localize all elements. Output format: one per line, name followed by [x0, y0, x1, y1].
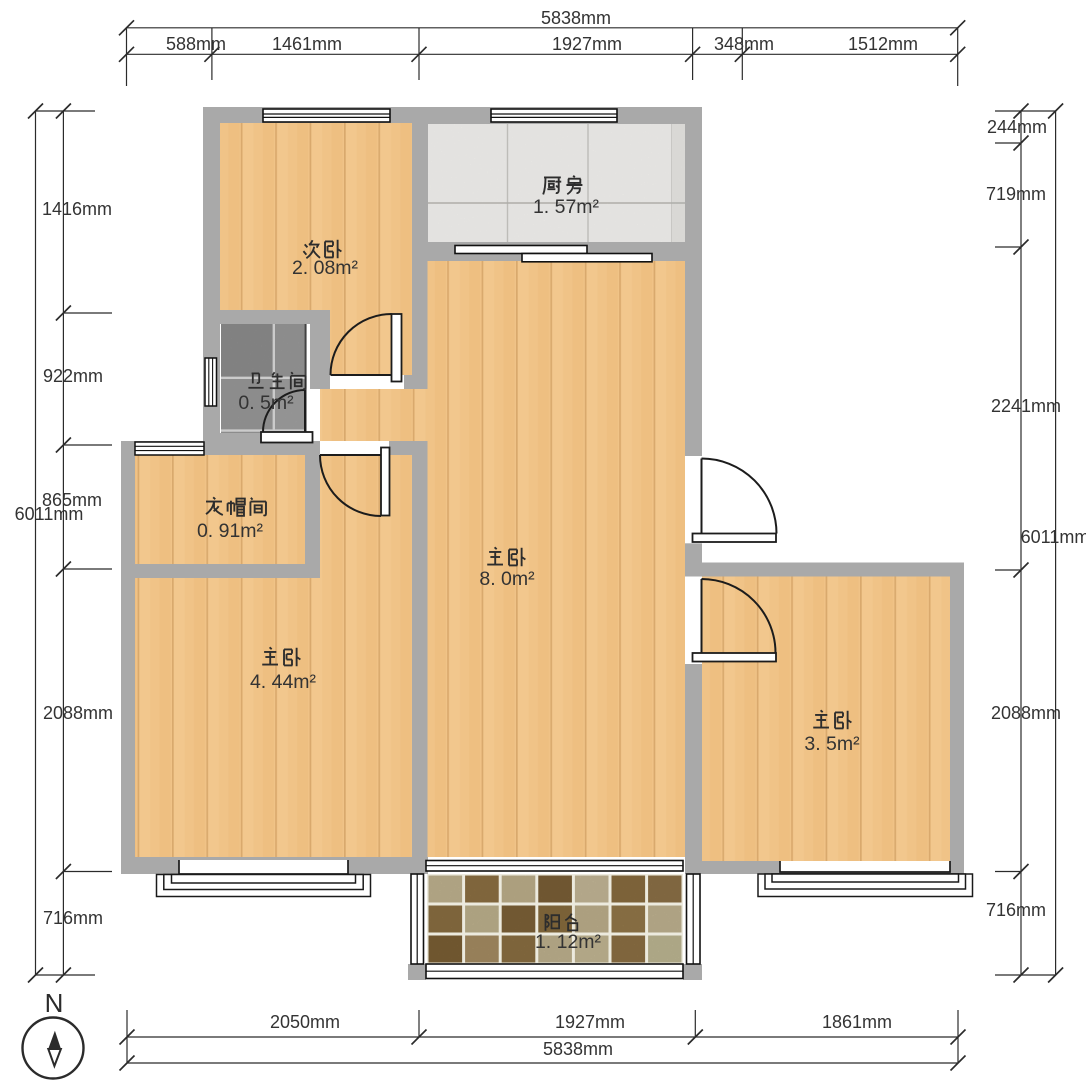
- svg-text:6011mm: 6011mm: [1021, 527, 1086, 547]
- svg-text:348mm: 348mm: [714, 34, 774, 54]
- svg-text:1461mm: 1461mm: [272, 34, 342, 54]
- svg-text:716mm: 716mm: [986, 900, 1046, 920]
- svg-text:2050mm: 2050mm: [270, 1012, 340, 1032]
- svg-text:5838mm: 5838mm: [543, 1039, 613, 1059]
- svg-text:N: N: [45, 988, 64, 1018]
- svg-text:719mm: 719mm: [986, 184, 1046, 204]
- svg-text:4. 44m²: 4. 44m²: [250, 671, 317, 693]
- svg-text:922mm: 922mm: [43, 366, 103, 386]
- svg-text:3. 5m²: 3. 5m²: [804, 733, 860, 755]
- svg-text:2088mm: 2088mm: [991, 703, 1061, 723]
- svg-text:716mm: 716mm: [43, 908, 103, 928]
- svg-text:588mm: 588mm: [166, 34, 226, 54]
- svg-text:1416mm: 1416mm: [42, 199, 112, 219]
- svg-text:1512mm: 1512mm: [848, 34, 918, 54]
- svg-text:5838mm: 5838mm: [541, 8, 611, 28]
- svg-text:1927mm: 1927mm: [555, 1012, 625, 1032]
- svg-text:1. 12m²: 1. 12m²: [535, 931, 602, 953]
- svg-text:1. 57m²: 1. 57m²: [533, 196, 600, 218]
- svg-text:2. 08m²: 2. 08m²: [292, 257, 359, 279]
- svg-text:0. 5m²: 0. 5m²: [238, 392, 294, 414]
- svg-text:1927mm: 1927mm: [552, 34, 622, 54]
- svg-text:2241mm: 2241mm: [991, 396, 1061, 416]
- svg-text:865mm: 865mm: [42, 490, 102, 510]
- svg-text:244mm: 244mm: [987, 117, 1047, 137]
- svg-text:1861mm: 1861mm: [822, 1012, 892, 1032]
- svg-text:8. 0m²: 8. 0m²: [479, 568, 535, 590]
- svg-text:2088mm: 2088mm: [43, 703, 113, 723]
- svg-text:0. 91m²: 0. 91m²: [197, 520, 264, 542]
